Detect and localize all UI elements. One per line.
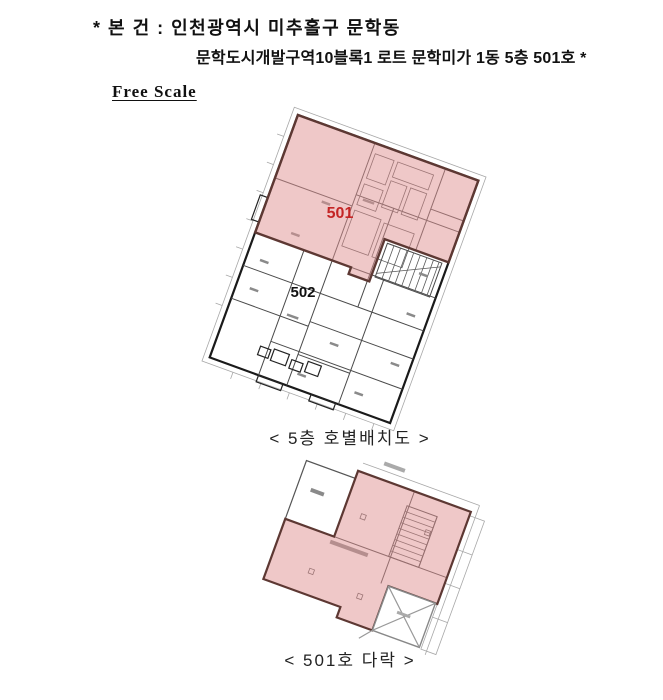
- scanned-appraisal-page: { "header": { "line1": "* 본 건 : 인천광역시 미추…: [0, 0, 663, 700]
- attic-501-highlight-region: [260, 453, 471, 648]
- subject-address-line: 문학도시개발구역10블록1 로트 문학미가 1동 5층 501호 *: [196, 44, 587, 68]
- subject-property-line: * 본 건 : 인천광역시 미추홀구 문학동: [93, 14, 401, 40]
- unit-501-label: 501: [327, 205, 354, 222]
- floor5-plan-svg: 501 502: [150, 95, 535, 435]
- unit-502-label: 502: [290, 284, 315, 301]
- attic-rotated-plan: [256, 440, 493, 665]
- attic-plan-caption: < 501호 다락 >: [130, 646, 570, 671]
- bay-window: [256, 375, 283, 390]
- floor5-rotated-plan: [193, 105, 486, 435]
- dimension-text-mark: [384, 461, 406, 472]
- fixtures: [257, 344, 322, 378]
- bay-window: [309, 394, 336, 409]
- floor5-plan-figure: 501 502: [150, 95, 535, 435]
